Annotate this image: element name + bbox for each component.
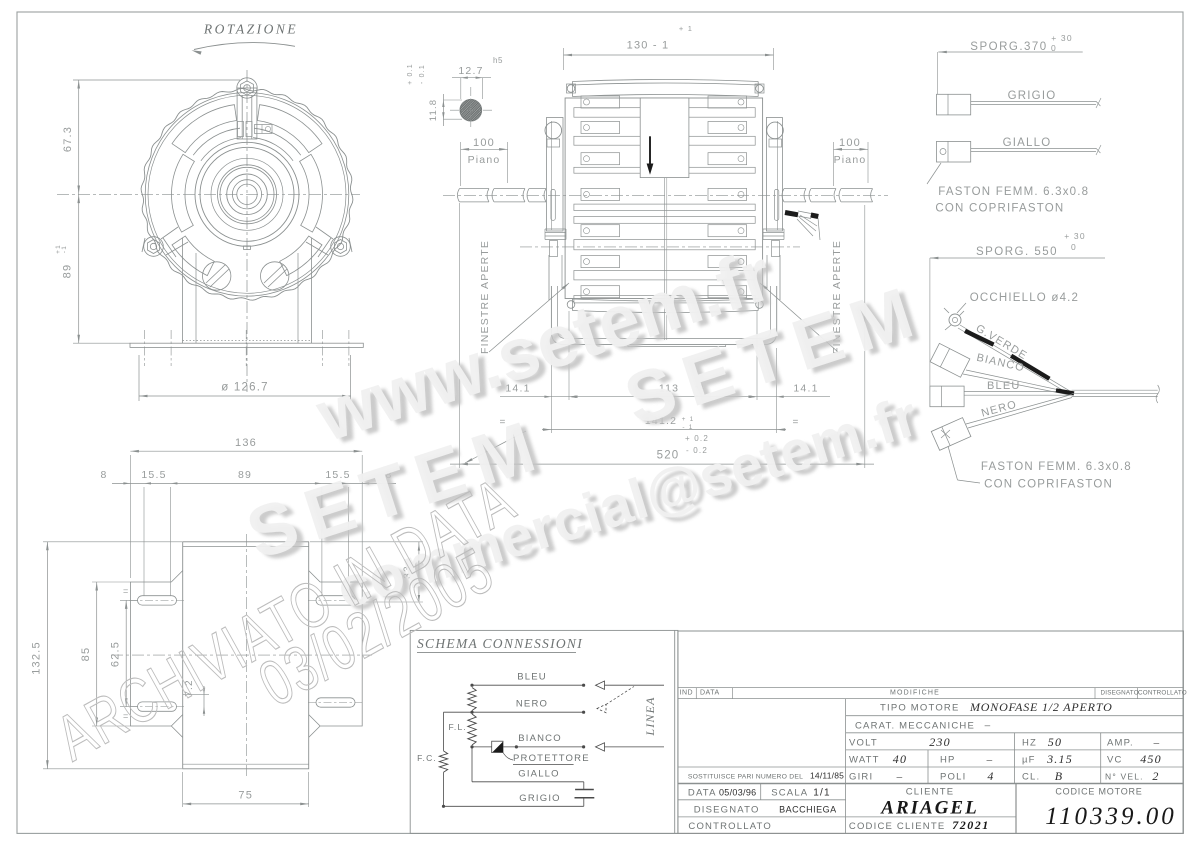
svg-text:+ 30: + 30 [1051,33,1073,43]
svg-text:–: – [986,754,994,766]
svg-text:+ 30: + 30 [1064,231,1086,241]
svg-text:FASTON FEMM. 6.3x0.8: FASTON FEMM. 6.3x0.8 [938,186,1089,198]
svg-text:3.15: 3.15 [1046,752,1073,766]
svg-text:HZ: HZ [1022,738,1037,749]
svg-text:SPORG. 550: SPORG. 550 [976,246,1058,258]
svg-text:POLI: POLI [940,772,966,783]
svg-text:CL.: CL. [1022,772,1040,783]
svg-text:0: 0 [1071,242,1077,252]
svg-text:11.8: 11.8 [428,99,439,122]
svg-text:15.5: 15.5 [141,469,166,481]
svg-text:µF: µF [1022,755,1036,766]
svg-text:F.C.: F.C. [417,753,437,763]
svg-text:F.L.: F.L. [448,722,467,732]
svg-text:DATA: DATA [688,788,717,799]
svg-text:CODICE CLIENTE: CODICE CLIENTE [849,821,946,832]
svg-text:CONTROLLATO: CONTROLLATO [688,821,772,832]
svg-text:GRIGIO: GRIGIO [519,793,561,804]
svg-text:B: B [1055,769,1064,783]
svg-text:4: 4 [987,769,994,783]
svg-text:75: 75 [238,790,253,802]
svg-text:CLIENTE: CLIENTE [906,787,955,798]
svg-text:1/1: 1/1 [813,788,831,799]
svg-text:12.7: 12.7 [458,65,483,77]
svg-text:IND: IND [680,690,694,697]
svg-text:AMP.: AMP. [1107,738,1134,749]
svg-text:h5: h5 [493,56,503,65]
svg-text:NERO: NERO [516,699,548,710]
svg-text:LINEA: LINEA [643,696,657,736]
svg-text:72021: 72021 [952,818,990,832]
svg-text:–: – [985,721,992,732]
svg-text:OCCHIELLO ø4.2: OCCHIELLO ø4.2 [970,292,1079,304]
svg-text:GIRI: GIRI [849,772,873,783]
svg-text:=: = [123,586,129,596]
svg-text:CONTROLLATO: CONTROLLATO [1138,690,1187,697]
svg-text:CODICE MOTORE: CODICE MOTORE [1055,787,1142,797]
svg-text:110339.00: 110339.00 [1045,803,1176,830]
svg-text:BLEU: BLEU [517,672,547,683]
svg-text:N° VEL.: N° VEL. [1105,772,1144,782]
svg-text:ROTAZIONE: ROTAZIONE [203,22,298,37]
svg-text:BLEU: BLEU [987,380,1021,392]
svg-text:450: 450 [1140,752,1162,766]
svg-text:100: 100 [839,137,861,149]
svg-text:8: 8 [100,469,107,481]
svg-text:230: 230 [929,735,951,749]
svg-text:DISEGNATO: DISEGNATO [694,805,760,816]
svg-text:67.3: 67.3 [62,126,74,152]
svg-text:40: 40 [893,752,907,766]
svg-text:Piano: Piano [468,154,501,166]
svg-text:-1: -1 [61,245,68,253]
svg-text:TIPO MOTORE: TIPO MOTORE [880,703,960,714]
svg-text:132.5: 132.5 [31,641,43,675]
svg-text:MODIFICHE: MODIFICHE [890,690,940,697]
svg-text:CARAT. MECCANICHE: CARAT. MECCANICHE [855,721,975,732]
svg-text:FASTON FEMM. 6.3x0.8: FASTON FEMM. 6.3x0.8 [981,461,1132,473]
svg-text:VC: VC [1107,755,1123,766]
svg-text:GIALLO: GIALLO [1003,137,1052,149]
svg-text:+ 0.2: + 0.2 [685,434,709,443]
svg-text:DATA: DATA [700,690,720,697]
svg-text:VOLT: VOLT [849,738,878,749]
svg-text:SCHEMA CONNESSIONI: SCHEMA CONNESSIONI [417,636,583,651]
svg-text:DISEGNATO: DISEGNATO [1101,690,1139,697]
svg-text:BACCHIEGA: BACCHIEGA [779,805,837,815]
svg-text:85: 85 [80,647,92,662]
svg-text:89: 89 [238,469,252,481]
svg-text:89: 89 [62,264,74,279]
svg-text:SCALA: SCALA [771,788,808,799]
svg-text:WATT: WATT [849,755,880,766]
svg-text:–: – [896,771,904,783]
svg-text:ARIAGEL: ARIAGEL [880,798,978,819]
svg-text:136: 136 [235,437,257,449]
svg-text:PROTETTORE: PROTETTORE [513,753,590,764]
svg-text:HP: HP [940,755,956,766]
svg-text:ø 126.7: ø 126.7 [221,382,268,394]
svg-text:+ 0.1: + 0.1 [407,63,414,85]
svg-text:GIALLO: GIALLO [518,769,560,780]
svg-text:100: 100 [473,137,495,149]
svg-text:MONOFASE 1/2 APERTO: MONOFASE 1/2 APERTO [969,700,1113,714]
svg-text:0: 0 [1051,43,1057,53]
svg-text:05/03/96: 05/03/96 [719,788,756,798]
svg-text:62.5: 62.5 [110,641,122,667]
svg-text:CON COPRIFASTON: CON COPRIFASTON [984,479,1113,491]
svg-text:Piano: Piano [834,154,867,166]
svg-text:130 - 1: 130 - 1 [627,40,670,52]
svg-text:SOSTITUISCE PARI NUMERO DEL: SOSTITUISCE PARI NUMERO DEL [688,774,803,781]
svg-text:+ 1: + 1 [679,24,693,33]
svg-text:- 0.1: - 0.1 [419,64,426,84]
svg-text:BIANCO: BIANCO [518,733,562,744]
svg-text:50: 50 [1048,735,1062,749]
svg-text:2: 2 [1152,769,1159,783]
svg-text:SPORG.370: SPORG.370 [970,41,1047,53]
svg-text:GRIGIO: GRIGIO [1008,90,1057,102]
svg-text:–: – [1153,737,1161,749]
svg-text:14/11/85: 14/11/85 [810,771,844,781]
svg-text:CON COPRIFASTON: CON COPRIFASTON [935,203,1064,215]
